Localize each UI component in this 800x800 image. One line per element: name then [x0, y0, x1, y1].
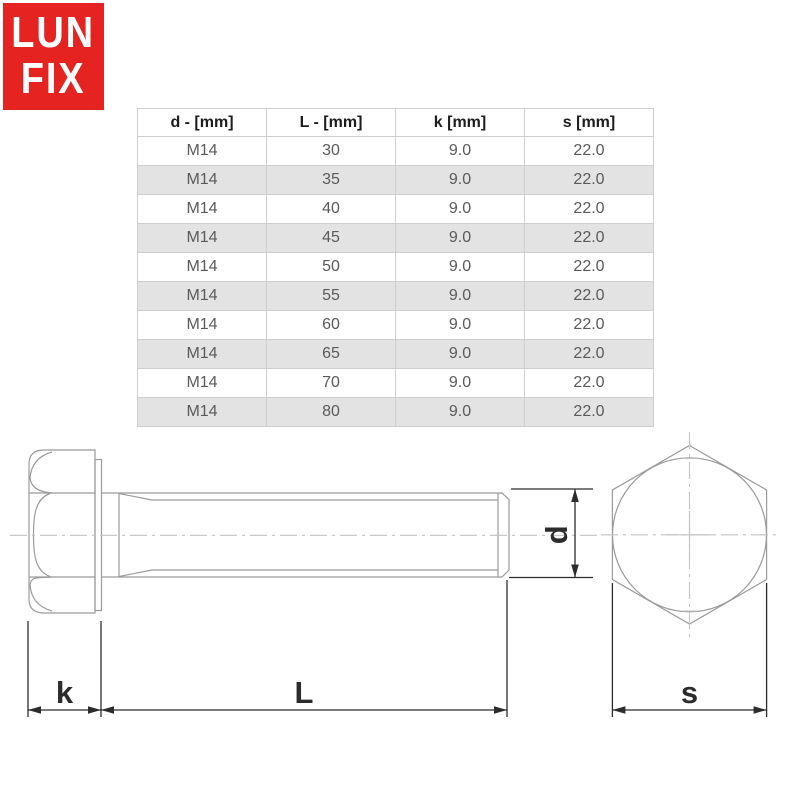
bolt-technical-drawing: k L d s [0, 0, 800, 800]
bolt-side-view [10, 450, 597, 613]
head-chamfer-arc-top-upper [30, 452, 52, 478]
arrow-d-bottom [571, 565, 579, 578]
arrow-L-left [101, 706, 114, 714]
arrow-s-right [754, 706, 767, 714]
dim-label-k: k [56, 675, 74, 710]
bolt-head-outline [29, 450, 95, 613]
dimensions: k L d s [28, 489, 767, 717]
arrow-k-left [28, 706, 41, 714]
head-chamfer-arc-bottom-upper [30, 577, 52, 585]
thread-runout-top [119, 494, 152, 501]
arrow-k-right [88, 706, 101, 714]
dim-label-L: L [295, 675, 314, 710]
page: LUN FIX d - [mm] L - [mm] k [mm] s [mm] … [0, 0, 800, 800]
dim-label-d: d [539, 525, 574, 544]
arrow-L-right [494, 706, 507, 714]
head-chamfer-arc-top-lower [30, 478, 52, 493]
arrow-d-top [571, 489, 579, 502]
thread-runout-bottom [119, 570, 152, 577]
bolt-top-view [601, 432, 778, 638]
head-chamfer-arc-bottom-lower [30, 585, 52, 611]
dim-label-s: s [681, 675, 698, 710]
arrow-s-left [612, 706, 625, 714]
